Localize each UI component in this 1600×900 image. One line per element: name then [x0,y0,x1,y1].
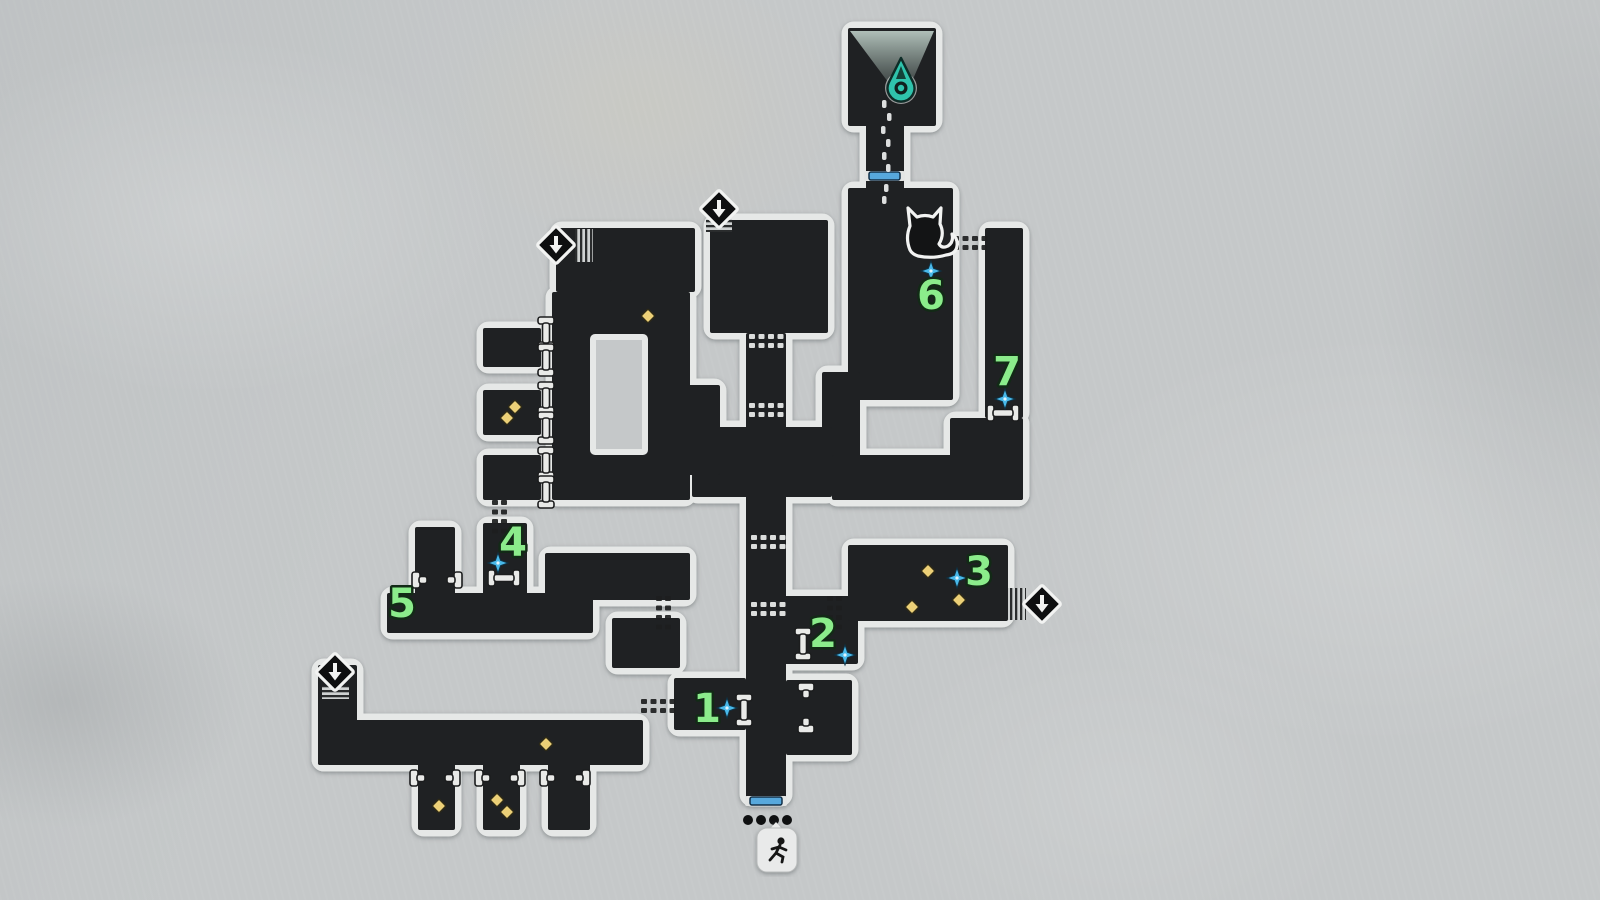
trail-dot [882,100,887,108]
trail-dot [886,164,891,172]
player-badge [757,822,797,872]
marker-label-2: 2 [809,611,837,657]
room-lower-right-stub [786,680,852,755]
blue-door [864,171,905,181]
trail-dot [882,196,887,204]
room-upper-mid-room [710,220,828,333]
room-ring-arm [685,385,720,475]
room-left-arm-2 [483,390,541,435]
room-stub-a [415,527,455,597]
marker-label-4: 4 [499,520,527,566]
room-sw-stub-1 [418,763,455,830]
trail-dot [887,113,892,121]
map-screen: 1234567 [0,0,1600,900]
marker-label-3: 3 [965,549,993,595]
marker-label-6: 6 [917,273,945,319]
entrance-dot [769,815,779,825]
entrance-dot [782,815,792,825]
marker-label-7: 7 [993,349,1021,395]
trail-dot [886,139,891,147]
exit-down-icon [1023,585,1061,623]
room-southwest-bar [318,720,643,765]
exit-hatch-zone [575,229,593,262]
trail-dot [882,152,887,160]
room-left-arm-1 [483,328,541,367]
trail-dot [884,184,889,192]
room-room-5-band [545,553,690,600]
blue-door [745,796,787,806]
marker-label-1: 1 [693,686,721,732]
entrance-dot [756,815,766,825]
room-left-arm-3 [483,455,541,500]
entrance-dot [743,815,753,825]
map-canvas[interactable]: 1234567 [0,0,1600,900]
trail-dot [881,126,886,134]
ring-room-hole [593,337,645,452]
marker-label-5: 5 [388,581,416,627]
room-right-band [832,455,1023,500]
